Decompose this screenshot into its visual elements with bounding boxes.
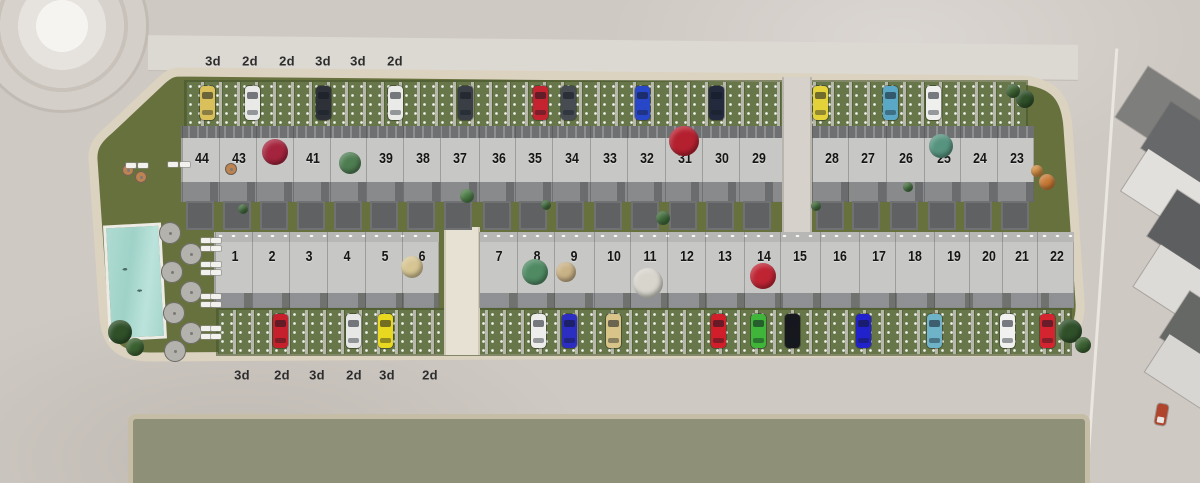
parked-car (458, 86, 473, 120)
tree (126, 338, 144, 356)
unit-number: 17 (872, 248, 886, 265)
tree (1075, 337, 1091, 353)
unit-number: 5 (381, 248, 388, 265)
sun-lounger (201, 302, 211, 307)
parked-car (927, 314, 942, 348)
unit-number: 38 (416, 150, 430, 167)
unit-number: 18 (908, 248, 922, 265)
parked-car (245, 86, 260, 120)
rear-patio (334, 201, 362, 230)
unit-number: 11 (643, 248, 656, 265)
rear-patio (1001, 201, 1029, 230)
central-walkway (444, 227, 480, 355)
parked-car (562, 314, 577, 348)
unit-number: 36 (492, 150, 506, 167)
sun-lounger (138, 163, 148, 168)
unit-10[interactable]: 10 (594, 232, 632, 308)
rear-patio (706, 201, 734, 230)
unit-number: 20 (982, 248, 996, 265)
unit-27[interactable]: 27 (848, 126, 886, 202)
tree (1039, 174, 1055, 190)
site-canvas: 3d2d2d3d3d2d3d2d3d2d3d2d4443424140393837… (0, 0, 1200, 483)
rear-patio (964, 201, 992, 230)
parasol (159, 222, 181, 244)
sun-lounger (168, 162, 178, 167)
unit-30[interactable]: 30 (702, 126, 740, 202)
parked-car (751, 314, 766, 348)
sun-lounger (211, 270, 221, 275)
unit-type-label: 2d (279, 54, 295, 69)
unit-number: 33 (603, 150, 617, 167)
unit-number: 15 (793, 248, 807, 265)
access-driveway (782, 77, 812, 232)
unit-number: 44 (195, 150, 209, 167)
sun-lounger (211, 334, 221, 339)
rear-patio (297, 201, 325, 230)
tree (1006, 84, 1020, 98)
unit-type-label: 3d (309, 368, 325, 383)
unit-type-label: 2d (346, 368, 362, 383)
parked-car (635, 86, 650, 120)
rear-patio (669, 201, 697, 230)
unit-4[interactable]: 4 (327, 232, 365, 308)
unit-2[interactable]: 2 (252, 232, 290, 308)
tree (460, 189, 474, 203)
tree (522, 259, 548, 285)
unit-number: 30 (715, 150, 729, 167)
unit-13[interactable]: 13 (705, 232, 743, 308)
parking-row-north (186, 82, 1026, 126)
unit-type-label: 2d (387, 54, 403, 69)
sun-lounger (180, 162, 190, 167)
rear-patio (928, 201, 956, 230)
rear-patio (556, 201, 584, 230)
unit-12[interactable]: 12 (667, 232, 705, 308)
sun-lounger (201, 246, 211, 251)
parked-car (378, 314, 393, 348)
unit-number: 19 (947, 248, 961, 265)
rear-patio (407, 201, 435, 230)
unit-type-label: 2d (274, 368, 290, 383)
rear-patio (370, 201, 398, 230)
unit-41[interactable]: 41 (293, 126, 331, 202)
parasol (180, 322, 202, 344)
unit-36[interactable]: 36 (479, 126, 517, 202)
parasol (180, 243, 202, 265)
tree (903, 182, 913, 192)
parked-car (606, 314, 621, 348)
parked-car (785, 314, 800, 348)
tree (1031, 165, 1043, 177)
unit-18[interactable]: 18 (895, 232, 933, 308)
unit-19[interactable]: 19 (934, 232, 972, 308)
unit-number: 2 (268, 248, 275, 265)
tree (656, 211, 670, 225)
sun-lounger (211, 238, 221, 243)
parked-car (316, 86, 331, 120)
unit-number: 37 (453, 150, 467, 167)
parked-car (883, 86, 898, 120)
unit-number: 24 (973, 150, 987, 167)
parasol (180, 281, 202, 303)
unit-number: 10 (607, 248, 621, 265)
unit-type-label: 3d (315, 54, 331, 69)
rear-patio (890, 201, 918, 230)
unit-type-label: 2d (242, 54, 258, 69)
sun-lounger (126, 163, 136, 168)
unit-number: 22 (1050, 248, 1064, 265)
parked-car (926, 86, 941, 120)
parked-car (533, 86, 548, 120)
sun-lounger (201, 238, 211, 243)
sun-lounger (211, 246, 221, 251)
parked-car (711, 314, 726, 348)
rear-patio (186, 201, 214, 230)
unit-number: 13 (718, 248, 732, 265)
tree (339, 152, 361, 174)
sun-lounger (201, 262, 211, 267)
sun-lounger (211, 262, 221, 267)
unit-type-label: 2d (422, 368, 438, 383)
unit-number: 26 (899, 150, 913, 167)
tree (238, 204, 248, 214)
rear-patio (444, 201, 472, 230)
rear-patio (594, 201, 622, 230)
tree (556, 262, 576, 282)
unit-15[interactable]: 15 (780, 232, 818, 308)
parked-car (531, 314, 546, 348)
unit-number: 34 (565, 150, 579, 167)
unit-5[interactable]: 5 (365, 232, 403, 308)
parasol (163, 302, 185, 324)
unit-22[interactable]: 22 (1037, 232, 1075, 308)
rear-patio (743, 201, 771, 230)
unit-number: 21 (1015, 248, 1029, 265)
unit-type-label: 3d (350, 54, 366, 69)
unit-type-label: 3d (379, 368, 395, 383)
parasol (225, 163, 237, 175)
sun-lounger (201, 334, 211, 339)
parked-car (388, 86, 403, 120)
tree (669, 126, 699, 156)
unit-number: 27 (861, 150, 875, 167)
rear-patio (631, 201, 659, 230)
unit-number: 35 (528, 150, 542, 167)
sun-lounger (201, 294, 211, 299)
tree (633, 268, 663, 298)
tree (262, 139, 288, 165)
unit-24[interactable]: 24 (960, 126, 998, 202)
sun-lounger (211, 326, 221, 331)
unit-number: 29 (752, 150, 766, 167)
unit-35[interactable]: 35 (515, 126, 553, 202)
parked-car (273, 314, 288, 348)
rear-patio (260, 201, 288, 230)
unit-type-label: 3d (234, 368, 250, 383)
unit-17[interactable]: 17 (859, 232, 897, 308)
unit-3[interactable]: 3 (289, 232, 327, 308)
parked-car (200, 86, 215, 120)
parked-car (1040, 314, 1055, 348)
sun-lounger (201, 326, 211, 331)
sun-lounger (211, 302, 221, 307)
unit-number: 39 (379, 150, 393, 167)
unit-23[interactable]: 23 (997, 126, 1035, 202)
unit-number: 4 (343, 248, 350, 265)
unit-number: 12 (680, 248, 694, 265)
tree (750, 263, 776, 289)
unit-number: 28 (825, 150, 839, 167)
parked-car (813, 86, 828, 120)
parasol (161, 261, 183, 283)
unit-number: 16 (833, 248, 847, 265)
unit-33[interactable]: 33 (590, 126, 628, 202)
parasol (135, 171, 147, 183)
sun-lounger (211, 294, 221, 299)
parasol (164, 340, 186, 362)
unit-16[interactable]: 16 (820, 232, 858, 308)
sun-lounger (201, 270, 211, 275)
tree (401, 256, 423, 278)
tree (811, 201, 821, 211)
unit-number: 3 (305, 248, 312, 265)
unit-29[interactable]: 29 (739, 126, 777, 202)
parked-car (856, 314, 871, 348)
parked-car (1000, 314, 1015, 348)
unit-number: 23 (1010, 150, 1024, 167)
unit-28[interactable]: 28 (812, 126, 850, 202)
unit-21[interactable]: 21 (1002, 232, 1040, 308)
unit-32[interactable]: 32 (627, 126, 665, 202)
parked-car (346, 314, 361, 348)
unit-number: 7 (495, 248, 502, 265)
unit-38[interactable]: 38 (403, 126, 441, 202)
unit-7[interactable]: 7 (479, 232, 517, 308)
unit-34[interactable]: 34 (552, 126, 590, 202)
unit-type-label: 3d (205, 54, 221, 69)
parked-car (709, 86, 724, 120)
tree (929, 134, 953, 158)
unit-43[interactable]: 43 (219, 126, 257, 202)
rear-patio (483, 201, 511, 230)
parked-car (561, 86, 576, 120)
unit-number: 41 (306, 150, 320, 167)
tree (541, 200, 551, 210)
rear-patio (852, 201, 880, 230)
unit-number: 1 (231, 248, 238, 265)
unit-39[interactable]: 39 (366, 126, 404, 202)
unit-number: 32 (640, 150, 654, 167)
